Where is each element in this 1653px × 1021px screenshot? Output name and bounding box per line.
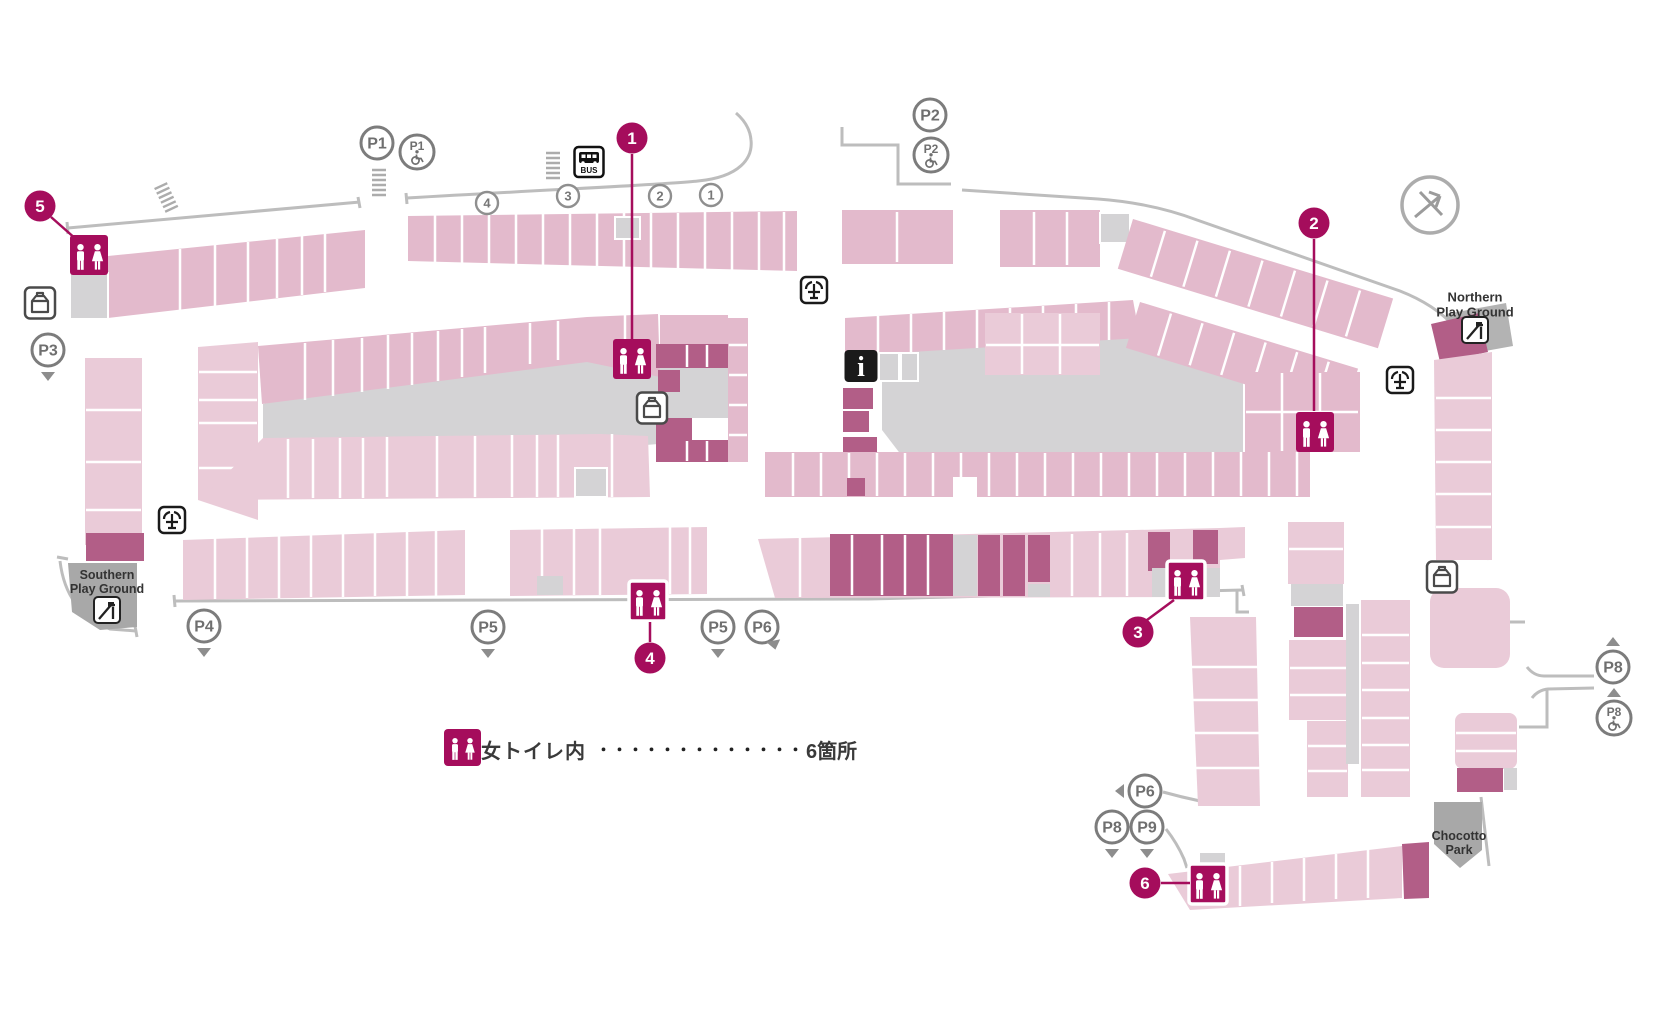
toilet-icon-2[interactable] (1296, 412, 1334, 452)
parking-direction-arrow (1607, 688, 1621, 697)
stairs-icon (372, 170, 386, 195)
parking-badge-p8-accessible[interactable]: P8 (1597, 688, 1631, 735)
svg-text:P6: P6 (752, 620, 772, 637)
parking-badge-p2-accessible[interactable]: P2 (914, 138, 948, 172)
info-icon: i (845, 350, 878, 383)
svg-text:i: i (857, 352, 865, 383)
svg-text:1: 1 (707, 188, 714, 203)
svg-text:1: 1 (627, 129, 636, 148)
svg-text:6: 6 (1140, 874, 1149, 893)
parking-badge-p1-accessible[interactable]: P1 (400, 135, 434, 169)
parking-direction-arrow (711, 649, 725, 658)
buildings-layer (68, 210, 1517, 910)
svg-text:P5: P5 (478, 620, 498, 637)
bus-stop-number-3: 3 (557, 185, 579, 207)
svg-text:P8: P8 (1102, 820, 1122, 837)
parking-badge-p9[interactable]: P9 (1131, 811, 1163, 858)
svg-text:4: 4 (645, 649, 655, 668)
bus-stop-number-4: 4 (476, 192, 498, 214)
svg-text:P6: P6 (1135, 784, 1155, 801)
toilet-icon-6[interactable] (1189, 864, 1227, 904)
parking-badge-p5[interactable]: P5 (702, 611, 734, 658)
legend-dots: ・・・・・・・・・・・・・ (596, 739, 804, 760)
svg-text:P5: P5 (708, 620, 728, 637)
bus-icon: BUS (575, 147, 604, 177)
parking-badge-p6[interactable]: P6 (746, 611, 782, 650)
parking-direction-arrow (1606, 637, 1620, 646)
locker-icon (637, 393, 667, 424)
toilet-icon-1[interactable] (613, 339, 651, 379)
mall-restroom-map: BUSi P1P1P2P2P3P4P5P5P6P6P8P9P8P84321 12… (0, 0, 1653, 1021)
toilet-marker-3[interactable]: 3 (1123, 600, 1175, 648)
parking-direction-arrow (1105, 849, 1119, 858)
fountain-icon (801, 277, 827, 303)
svg-text:3: 3 (1133, 623, 1142, 642)
fountain-icon (1387, 367, 1413, 393)
legend: 男女トイレ内 ・・・・・・・・・・・・・ 6箇所 (444, 729, 857, 769)
toilet-icon-5[interactable] (70, 235, 108, 275)
toilet-icon-4[interactable] (629, 581, 667, 621)
southern-play-ground-label: SouthernPlay Ground (70, 568, 144, 596)
compass-icon (1402, 177, 1458, 233)
mf-toilet-legend-icon (444, 729, 481, 766)
parking-badge-p8[interactable]: P8 (1096, 811, 1128, 858)
parking-badge-p1[interactable]: P1 (361, 127, 393, 159)
chocotto-park-label: ChocottoPark (1432, 829, 1487, 857)
parking-direction-arrow (481, 649, 495, 658)
svg-text:P2: P2 (920, 108, 940, 125)
svg-text:3: 3 (564, 189, 571, 204)
parking-badge-p6[interactable]: P6 (1115, 775, 1161, 807)
stairs-icon (155, 183, 178, 212)
bus-stop-number-1: 1 (700, 184, 722, 206)
parking-direction-arrow (41, 372, 55, 381)
svg-text:5: 5 (35, 197, 44, 216)
parking-direction-arrow (197, 648, 211, 657)
slide-icon (94, 597, 120, 623)
svg-text:P8: P8 (1603, 660, 1623, 677)
fountain-icon (159, 507, 185, 533)
parking-badge-p4[interactable]: P4 (188, 610, 220, 657)
parking-badge-p3[interactable]: P3 (32, 334, 64, 381)
legend-count: 6箇所 (806, 735, 857, 764)
toilet-marker-4[interactable]: 4 (635, 622, 666, 674)
locker-icon (1427, 562, 1457, 593)
toilet-marker-5[interactable]: 5 (25, 191, 78, 241)
parking-badge-p5[interactable]: P5 (472, 611, 504, 658)
map-canvas: BUSi P1P1P2P2P3P4P5P5P6P6P8P9P8P84321 12… (0, 0, 1653, 1021)
locker-icon (25, 288, 55, 319)
svg-text:BUS: BUS (581, 166, 599, 175)
parking-direction-arrow (1140, 849, 1154, 858)
svg-text:P1: P1 (367, 136, 387, 153)
bus-stop-number-2: 2 (649, 185, 671, 207)
parking-badge-p8[interactable]: P8 (1597, 637, 1629, 683)
stairs-icon (546, 153, 560, 178)
parking-badge-p2[interactable]: P2 (914, 99, 946, 131)
svg-text:P9: P9 (1137, 820, 1157, 837)
svg-text:2: 2 (1309, 214, 1318, 233)
svg-text:4: 4 (483, 196, 491, 211)
svg-text:P3: P3 (38, 343, 58, 360)
parking-direction-arrow (1115, 784, 1124, 798)
slide-icon (1462, 317, 1488, 343)
svg-text:2: 2 (656, 189, 663, 204)
toilet-icon-3[interactable] (1167, 561, 1205, 601)
svg-text:P4: P4 (194, 619, 214, 636)
northern-play-ground-label: NorthernPlay Ground (1436, 290, 1513, 319)
